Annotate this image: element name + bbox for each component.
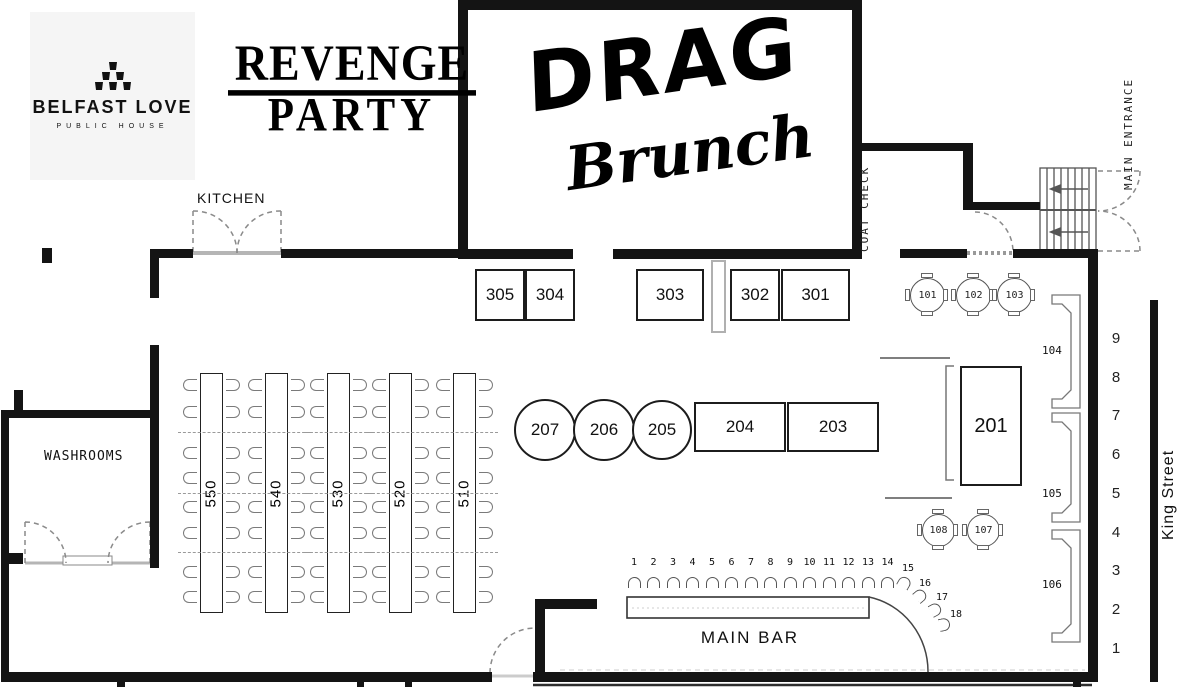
chair[interactable] [372, 566, 386, 578]
table-204[interactable]: 204 [694, 402, 786, 452]
bar-stool[interactable] [686, 577, 699, 588]
chair[interactable] [248, 591, 262, 603]
table-102[interactable]: 102 [956, 278, 991, 313]
chair-stub [921, 311, 933, 316]
chair-stub [967, 311, 979, 316]
chair[interactable] [372, 406, 386, 418]
table-301[interactable]: 301 [781, 269, 850, 321]
section-divider [305, 552, 372, 553]
bar-stool[interactable] [706, 577, 719, 588]
chair[interactable] [248, 447, 262, 459]
event-title-line2: PARTY [228, 92, 476, 139]
kitchen-door-right-swing [237, 211, 281, 253]
table-302[interactable]: 302 [730, 269, 780, 321]
main-entrance-label: MAIN ENTRANCE [1122, 48, 1135, 190]
bar-stool[interactable] [647, 577, 660, 588]
section-divider [367, 432, 434, 433]
bar-stool[interactable] [764, 577, 777, 588]
coat-check-door-swing [975, 212, 1013, 252]
table-203[interactable]: 203 [787, 402, 879, 452]
table-207[interactable]: 207 [514, 399, 576, 461]
bar-seat-number: 16 [916, 578, 934, 589]
table-205[interactable]: 205 [632, 400, 692, 460]
banquette-201-bench [946, 366, 954, 480]
bar-partition-wall [535, 599, 545, 676]
chair[interactable] [248, 566, 262, 578]
chair[interactable] [436, 527, 450, 539]
crown-icon [93, 62, 133, 92]
venue-tagline: PUBLIC HOUSE [56, 123, 168, 130]
floor-plan: BELFAST LOVE PUBLIC HOUSE REVENGE PARTY … [0, 0, 1200, 687]
chair[interactable] [353, 406, 367, 418]
washrooms-label: WASHROOMS [44, 449, 123, 464]
chair[interactable] [183, 527, 197, 539]
chair-stub [932, 509, 944, 514]
chair[interactable] [291, 566, 305, 578]
chair[interactable] [479, 566, 493, 578]
chair[interactable] [226, 447, 240, 459]
bar-stool[interactable] [881, 577, 894, 588]
chair[interactable] [291, 501, 305, 513]
stage-wall-bottom-left [458, 249, 573, 259]
section-divider [243, 493, 310, 494]
chair[interactable] [310, 566, 324, 578]
chair[interactable] [353, 379, 367, 391]
bar-seat-number: 3 [664, 557, 682, 568]
west-wall-upper [150, 249, 159, 298]
booth-106-label[interactable]: 106 [1042, 578, 1062, 591]
wall-stub [42, 248, 52, 263]
chair[interactable] [372, 472, 386, 484]
chair[interactable] [310, 379, 324, 391]
section-divider [431, 552, 498, 553]
washroom-wall-right [150, 410, 159, 568]
chair-stub [977, 545, 989, 550]
chair-stub [943, 289, 948, 301]
booth-105-bench[interactable] [1052, 413, 1080, 522]
chair[interactable] [479, 591, 493, 603]
west-wall [1, 410, 9, 682]
chair[interactable] [310, 447, 324, 459]
chair[interactable] [226, 472, 240, 484]
chair[interactable] [353, 591, 367, 603]
washroom-door-sill [63, 556, 112, 565]
chair-stub [992, 289, 997, 301]
washroom-wall-corner [7, 553, 23, 564]
coat-check-label: COAT CHECK [858, 148, 871, 252]
chair[interactable] [479, 406, 493, 418]
chair-stub [905, 289, 910, 301]
table-107[interactable]: 107 [967, 514, 1000, 547]
bar-counter-curve [869, 597, 928, 672]
chair-stub [998, 524, 1003, 536]
booth-105-label[interactable]: 105 [1042, 487, 1062, 500]
window-seat-number: 9 [1104, 330, 1128, 347]
chair[interactable] [415, 379, 429, 391]
chair[interactable] [479, 527, 493, 539]
chair[interactable] [183, 406, 197, 418]
chair[interactable] [372, 591, 386, 603]
chair[interactable] [372, 501, 386, 513]
chair[interactable] [415, 566, 429, 578]
kitchen-label: KITCHEN [197, 190, 265, 206]
section-divider [178, 493, 245, 494]
street-label: King Street [1160, 420, 1178, 540]
section-divider [243, 552, 310, 553]
chair-stub [1030, 289, 1035, 301]
coat-check-wall [963, 143, 973, 210]
bar-stool[interactable] [667, 577, 680, 588]
chair[interactable] [248, 472, 262, 484]
bar-partition-wall [535, 599, 597, 609]
chair[interactable] [226, 591, 240, 603]
chair[interactable] [248, 501, 262, 513]
chair[interactable] [353, 472, 367, 484]
chair-stub [917, 524, 922, 536]
venue-name: BELFAST LOVE [32, 97, 192, 118]
chair[interactable] [372, 447, 386, 459]
chair[interactable] [248, 379, 262, 391]
coat-check-wall [862, 143, 973, 151]
bar-seat-number: 8 [762, 557, 780, 568]
washroom-door-left-swing [25, 522, 66, 563]
window-seat-number: 4 [1104, 524, 1128, 541]
entrance-door-bottom-swing [1098, 211, 1140, 251]
chair-stub [977, 509, 989, 514]
south-wall [533, 672, 1098, 682]
chair[interactable] [353, 447, 367, 459]
window-seat-number: 6 [1104, 446, 1128, 463]
window-tick [357, 682, 364, 687]
bar-seat-number: 12 [840, 557, 858, 568]
west-wall-mid [150, 345, 159, 412]
table-303[interactable]: 303 [636, 269, 704, 321]
section-divider [367, 552, 434, 553]
chair[interactable] [415, 501, 429, 513]
chair[interactable] [291, 406, 305, 418]
chair-stub [1008, 273, 1020, 278]
washroom-door-right-swing [108, 522, 150, 563]
chair[interactable] [436, 501, 450, 513]
section-divider [305, 493, 372, 494]
window-seat-number: 7 [1104, 407, 1128, 424]
chair[interactable] [183, 379, 197, 391]
bar-stool[interactable] [628, 577, 641, 588]
window-tick [1073, 682, 1081, 687]
section-divider [305, 432, 372, 433]
chair[interactable] [310, 406, 324, 418]
chair-stub [921, 273, 933, 278]
east-wall [1088, 255, 1098, 682]
table-305[interactable]: 305 [475, 269, 525, 321]
chair[interactable] [310, 591, 324, 603]
bar-stool[interactable] [842, 577, 855, 588]
bar-seat-number: 10 [801, 557, 819, 568]
chair-stub [932, 545, 944, 550]
event-logo: REVENGE PARTY [228, 40, 476, 137]
chair[interactable] [291, 447, 305, 459]
chair[interactable] [248, 527, 262, 539]
section-divider [431, 493, 498, 494]
wall-stub [14, 390, 23, 412]
bar-stool[interactable] [745, 577, 758, 588]
chair[interactable] [415, 591, 429, 603]
chair[interactable] [183, 472, 197, 484]
chair[interactable] [415, 527, 429, 539]
bar-seat-number: 6 [723, 557, 741, 568]
bar-seat-number: 1 [625, 557, 643, 568]
chair[interactable] [479, 379, 493, 391]
north-wall-right [900, 249, 967, 258]
chair-stub [953, 524, 958, 536]
chair[interactable] [248, 406, 262, 418]
chair[interactable] [310, 527, 324, 539]
bar-stool[interactable] [862, 577, 875, 588]
booth-104-label[interactable]: 104 [1042, 344, 1062, 357]
window-tick [117, 682, 125, 687]
chair[interactable] [436, 591, 450, 603]
stage-wall-bottom-right [613, 249, 862, 259]
window-seat-number: 1 [1104, 640, 1128, 657]
chair-stub [962, 524, 967, 536]
event-title-line1: REVENGE [228, 37, 476, 96]
north-wall [281, 249, 461, 258]
chair[interactable] [353, 501, 367, 513]
chair[interactable] [372, 527, 386, 539]
chair[interactable] [226, 527, 240, 539]
chair[interactable] [436, 472, 450, 484]
chair[interactable] [310, 501, 324, 513]
chair[interactable] [226, 406, 240, 418]
chair[interactable] [353, 527, 367, 539]
table-304[interactable]: 304 [525, 269, 575, 321]
chair[interactable] [415, 472, 429, 484]
chair[interactable] [226, 566, 240, 578]
chair[interactable] [183, 566, 197, 578]
chair[interactable] [291, 379, 305, 391]
table-201[interactable]: 201 [960, 366, 1022, 486]
window-tick [405, 682, 412, 687]
chair[interactable] [291, 591, 305, 603]
chair[interactable] [415, 406, 429, 418]
chair[interactable] [415, 447, 429, 459]
chair[interactable] [372, 379, 386, 391]
chair[interactable] [183, 591, 197, 603]
street-curb-line [1150, 300, 1158, 682]
south-wall [8, 672, 492, 682]
chair[interactable] [226, 379, 240, 391]
chair[interactable] [353, 566, 367, 578]
chair[interactable] [291, 527, 305, 539]
washroom-wall-top [2, 410, 158, 418]
window-seat-number: 3 [1104, 562, 1128, 579]
chair[interactable] [479, 501, 493, 513]
bar-stool[interactable] [725, 577, 738, 588]
main-bar-label: MAIN BAR [690, 628, 810, 648]
bar-seat-number: 13 [859, 557, 877, 568]
chair[interactable] [183, 501, 197, 513]
bar-seat-number: 2 [645, 557, 663, 568]
chair[interactable] [436, 379, 450, 391]
bar-seat-number: 9 [781, 557, 799, 568]
bar-stool[interactable] [823, 577, 836, 588]
chair-stub [967, 273, 979, 278]
chair-stub [951, 289, 956, 301]
table-101[interactable]: 101 [910, 278, 945, 313]
north-wall-right [1013, 249, 1098, 258]
chair[interactable] [479, 472, 493, 484]
chair[interactable] [436, 406, 450, 418]
table-103[interactable]: 103 [997, 278, 1032, 313]
kitchen-door-left-swing [193, 211, 237, 253]
bar-seat-number: 7 [742, 557, 760, 568]
window-seat-number: 5 [1104, 485, 1128, 502]
section-divider [431, 432, 498, 433]
rear-door-swing [490, 628, 535, 673]
bar-seat-number: 4 [684, 557, 702, 568]
table-206[interactable]: 206 [573, 399, 635, 461]
vestibule-wall [973, 202, 1040, 210]
section-divider [367, 493, 434, 494]
window-seat-number: 8 [1104, 369, 1128, 386]
pillar [712, 261, 725, 332]
bar-seat-number: 15 [899, 563, 917, 574]
bar-seat-number: 5 [703, 557, 721, 568]
entrance-stairs [1040, 168, 1096, 252]
venue-logo: BELFAST LOVE PUBLIC HOUSE [30, 12, 195, 180]
bar-stool[interactable] [803, 577, 816, 588]
bar-seat-number: 11 [820, 557, 838, 568]
table-108[interactable]: 108 [922, 514, 955, 547]
chair-stub [1008, 311, 1020, 316]
bar-seat-number: 14 [879, 557, 897, 568]
section-divider [178, 432, 245, 433]
chair[interactable] [183, 447, 197, 459]
bar-seat-number: 17 [933, 592, 951, 603]
chair[interactable] [436, 566, 450, 578]
bar-seat-number: 18 [947, 609, 965, 620]
section-divider [178, 552, 245, 553]
chair[interactable] [436, 447, 450, 459]
chair[interactable] [310, 472, 324, 484]
chair[interactable] [291, 472, 305, 484]
chair[interactable] [226, 501, 240, 513]
window-seat-number: 2 [1104, 601, 1128, 618]
bar-stool[interactable] [784, 577, 797, 588]
chair[interactable] [479, 447, 493, 459]
section-divider [243, 432, 310, 433]
